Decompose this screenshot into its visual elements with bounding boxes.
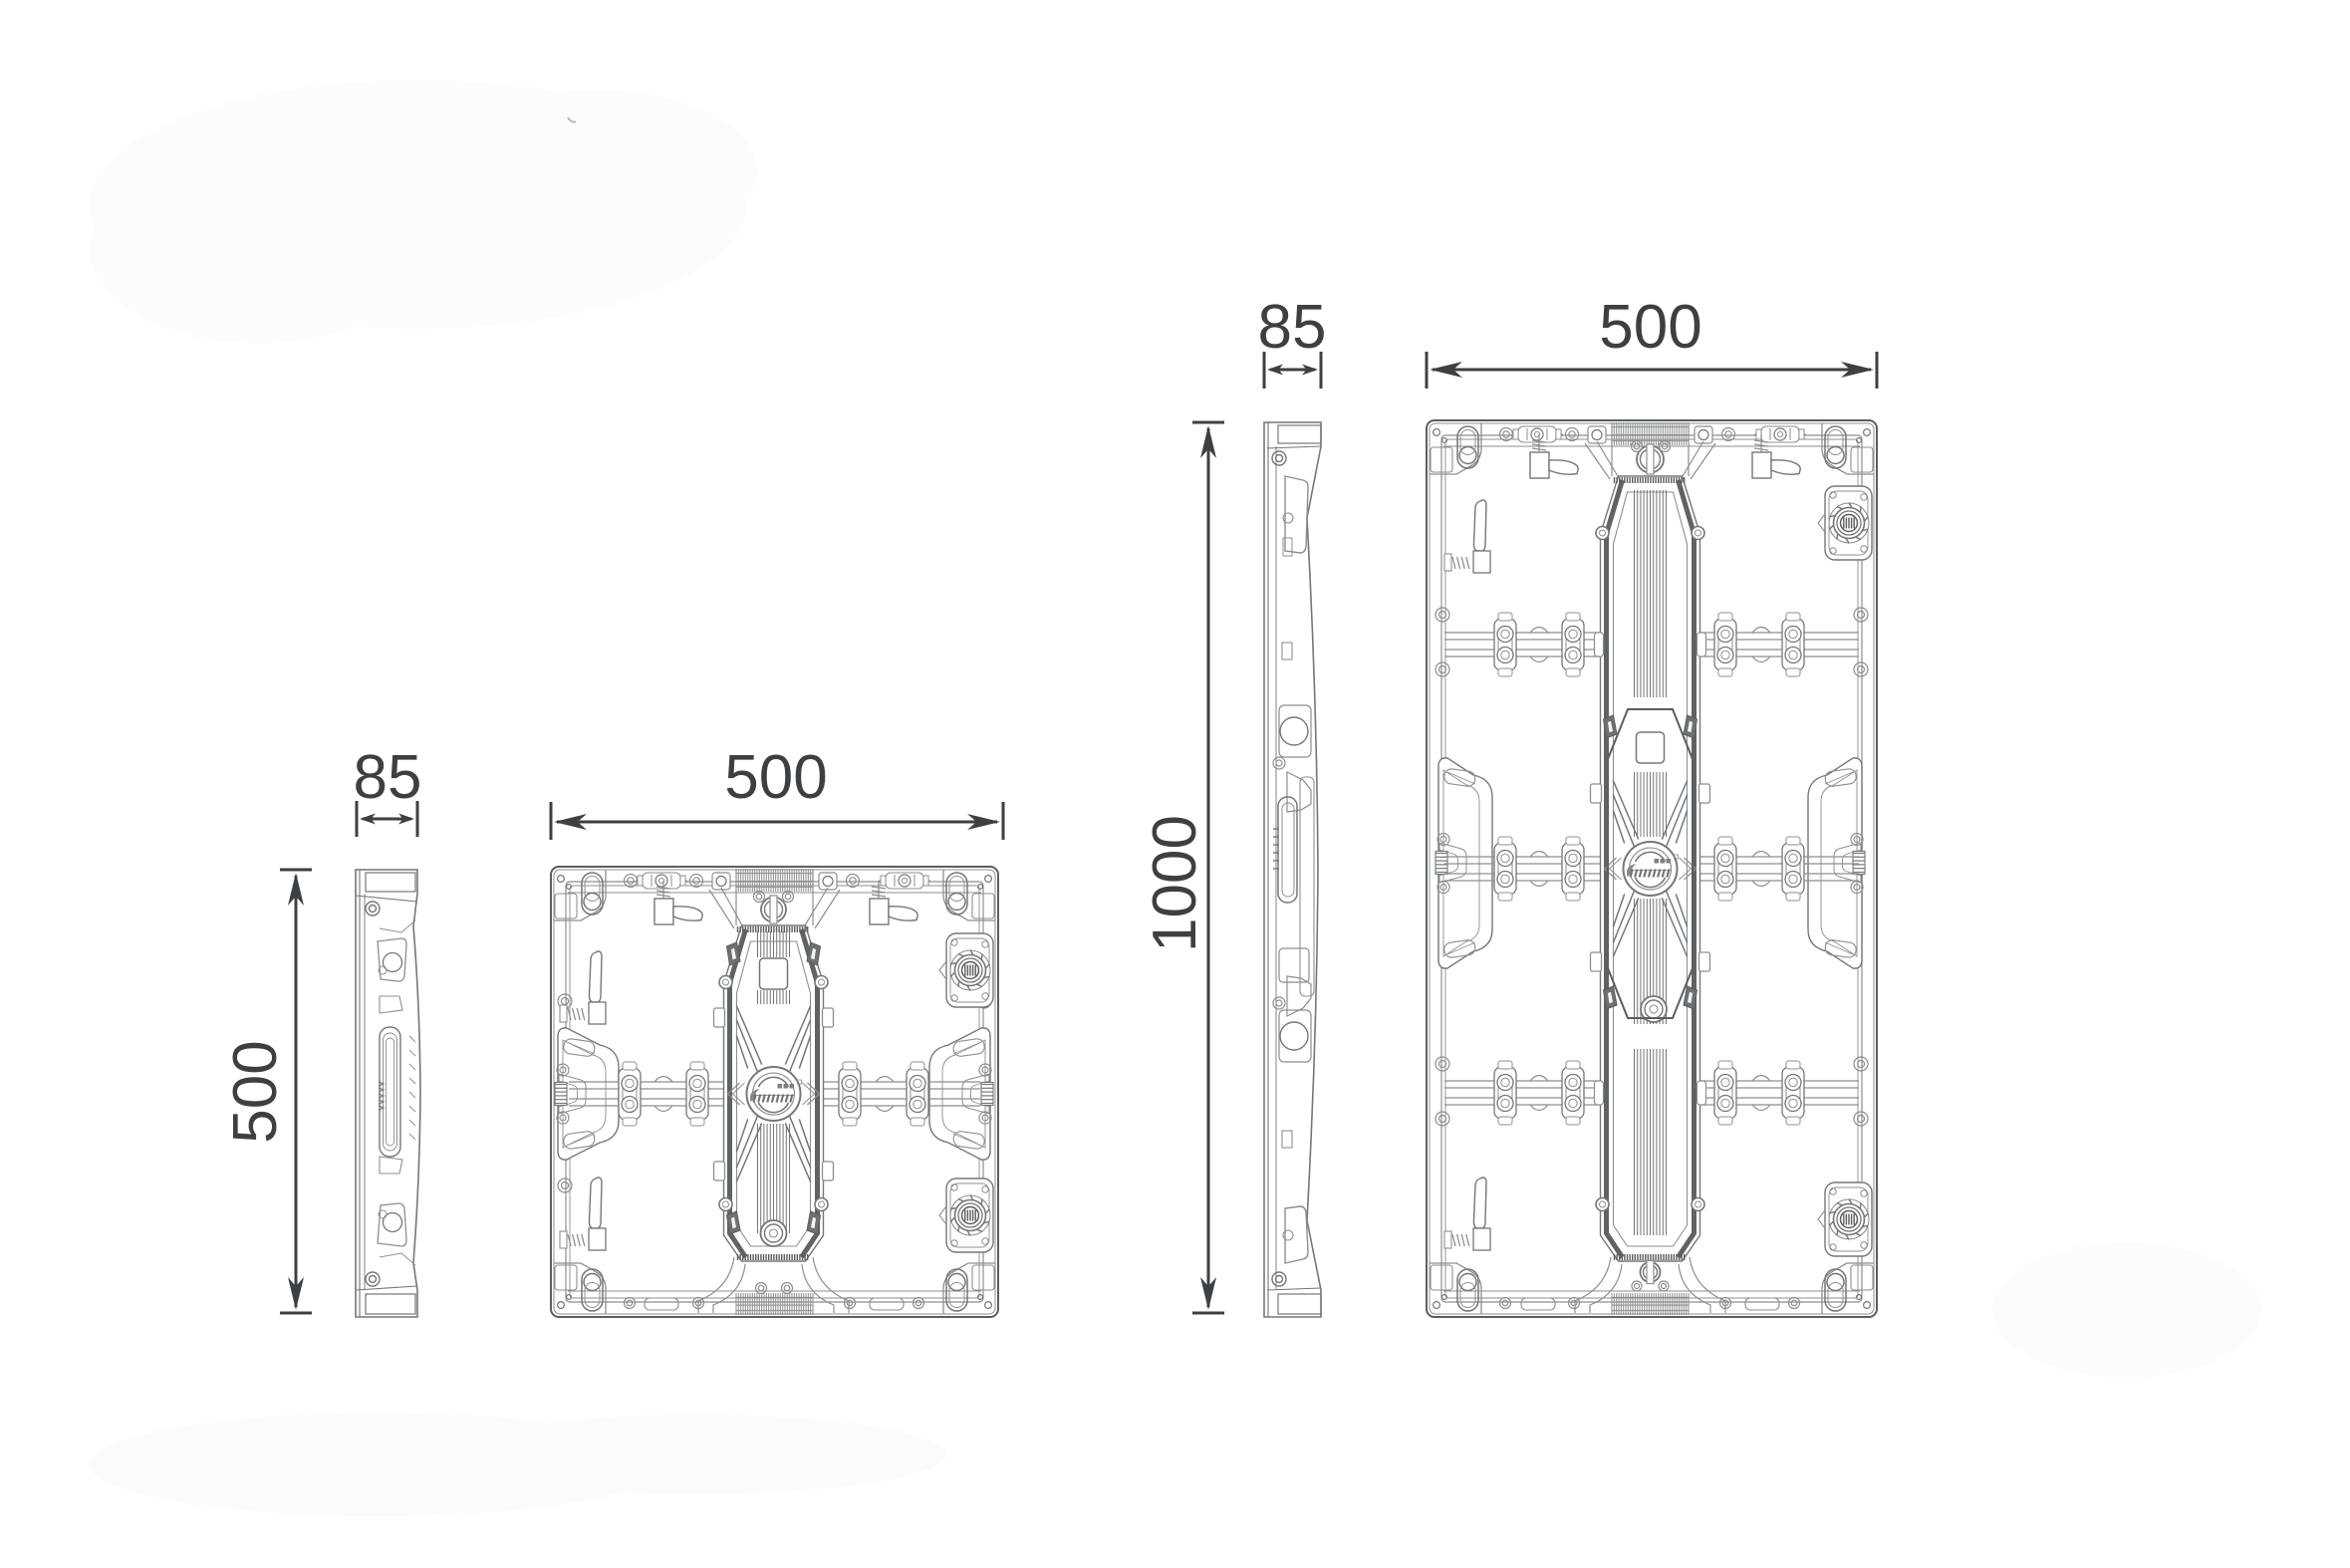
svg-text:500: 500: [1599, 293, 1701, 362]
svg-text:500: 500: [221, 1040, 290, 1143]
svg-text:85: 85: [1258, 293, 1327, 362]
svg-text:85: 85: [354, 743, 422, 812]
svg-text:500: 500: [724, 743, 827, 812]
svg-text:1000: 1000: [1141, 815, 1209, 952]
